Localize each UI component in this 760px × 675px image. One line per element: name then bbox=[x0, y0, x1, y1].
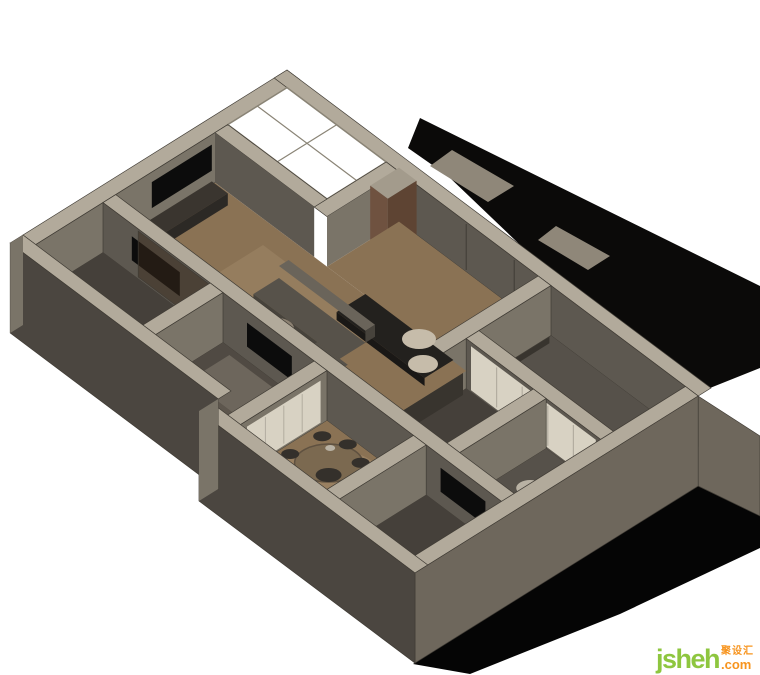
dining-chair-2 bbox=[339, 439, 357, 449]
watermark-brand-text: jsheh bbox=[656, 648, 719, 671]
dining-chair-1 bbox=[313, 431, 331, 441]
teapot bbox=[325, 445, 335, 451]
page: { "canvas": { "width": 760, "height": 67… bbox=[0, 0, 760, 675]
floor-plan-3d-render bbox=[0, 0, 760, 675]
watermark-right-block: 聚设汇 .com bbox=[721, 647, 754, 671]
watermark-tld-text: .com bbox=[721, 658, 751, 671]
step-corner-face bbox=[199, 399, 218, 501]
dining-table-base bbox=[316, 468, 342, 482]
step-endcap-face bbox=[10, 235, 23, 333]
watermark-logo: jsheh 聚设汇 .com bbox=[656, 647, 754, 671]
lounge-chair-2 bbox=[408, 355, 438, 373]
watermark-cjk-text: 聚设汇 bbox=[721, 647, 754, 657]
lounge-chair-1 bbox=[402, 329, 436, 349]
